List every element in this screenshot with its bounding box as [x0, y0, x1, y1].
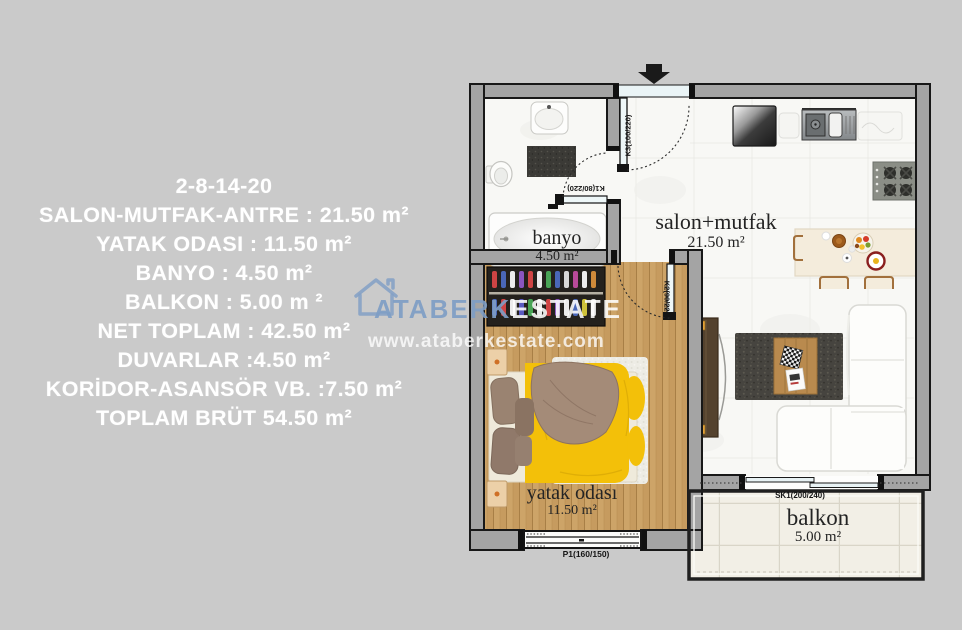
balcony-slider-label: SK1(200/240) — [760, 491, 840, 500]
yatak-room-area: 11.50 m² — [492, 503, 652, 519]
salon-room-label: salon+mutfak — [616, 209, 816, 235]
watermark-brand-right: ESTATE — [511, 294, 622, 324]
balkon-room-area: 5.00 m² — [738, 529, 898, 546]
bedroom-window — [518, 530, 647, 550]
salon-room-area: 21.50 m² — [616, 234, 816, 252]
banyo-room-label: banyo — [497, 227, 617, 250]
entry-door-label: K3(100/220) — [624, 106, 633, 166]
yatak-room-label: yatak odası — [492, 482, 652, 505]
bedroom-window-label: P1(160/150) — [546, 549, 626, 559]
magazine-icon — [786, 368, 806, 391]
banyo-room-area: 4.50 m² — [497, 249, 617, 265]
kitchen-sink-icon — [802, 108, 856, 140]
chessboard-icon — [780, 346, 803, 369]
floorplan-advert: { "info_panel": { "lines": [ "2-8-14-20"… — [0, 0, 962, 630]
balkon-room-label: balkon — [738, 505, 898, 531]
info-toplam-brut: TOPLAM BRÜT 54.50 m² — [0, 404, 448, 433]
info-salon-mutfak-antre: SALON-MUTFAK-ANTRE : 21.50 m² — [0, 201, 448, 230]
bedroom-door-label: K2(90/220) — [663, 270, 672, 330]
info-koridor-asansor: KORİDOR-ASANSÖR VB. :7.50 m² — [0, 375, 448, 404]
info-yatak-odasi: YATAK ODASI : 11.50 m² — [0, 230, 448, 259]
blanket — [531, 362, 618, 444]
bed-icon — [489, 362, 645, 483]
fridge-icon — [733, 106, 776, 146]
watermark-url: www.ataberkestate.com — [368, 331, 605, 353]
bath-mat-icon — [527, 146, 576, 177]
bath-door-label: K1(80/220) — [556, 184, 616, 193]
entrance-arrow-icon — [638, 64, 670, 84]
watermark-brand: ATABERKESTATE — [374, 294, 622, 325]
plan-code: 2-8-14-20 — [0, 172, 448, 201]
stove-icon — [873, 162, 916, 200]
watermark-brand-left: ATABERK — [374, 294, 511, 324]
coffee-table-icon — [774, 338, 817, 394]
